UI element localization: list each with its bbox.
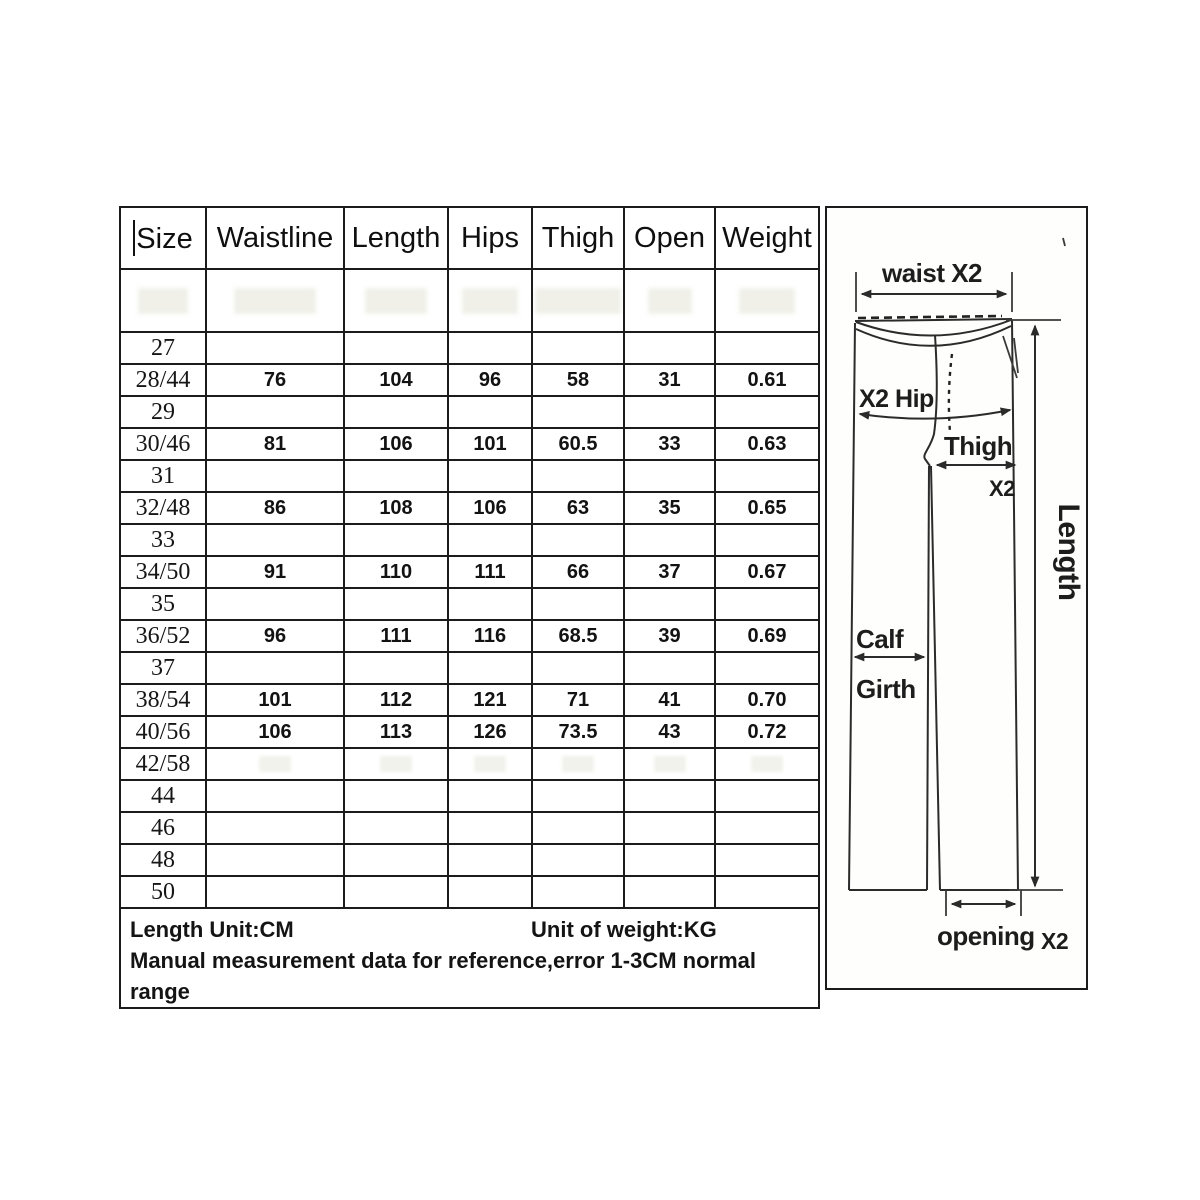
header-row: Size Waistline Length Hips Thigh Open We… — [120, 207, 819, 269]
speck-artifact — [1063, 238, 1065, 246]
hips-cell — [448, 812, 532, 844]
weight-cell: 0.70 — [715, 684, 819, 716]
length-cell: 108 — [344, 492, 448, 524]
faded-text-smudge — [739, 288, 795, 314]
weight-cell — [715, 460, 819, 492]
weight-cell — [715, 748, 819, 780]
open-cell — [624, 396, 715, 428]
col-header-size: Size — [120, 207, 206, 269]
hips-cell: 121 — [448, 684, 532, 716]
waistline-cell — [206, 748, 344, 780]
col-header-thigh: Thigh — [532, 207, 624, 269]
ghost-cell — [448, 269, 532, 332]
open-cell — [624, 876, 715, 908]
open-cell: 37 — [624, 556, 715, 588]
col-header-waistline: Waistline — [206, 207, 344, 269]
weight-cell — [715, 844, 819, 876]
length-cell: 104 — [344, 364, 448, 396]
thigh-measure: Thigh X2 — [937, 431, 1015, 501]
table-row: 30/46 81 106 101 60.5 33 0.63 — [120, 428, 819, 460]
table-row: 28/44 76 104 96 58 31 0.61 — [120, 364, 819, 396]
open-cell — [624, 652, 715, 684]
thigh-label: Thigh — [944, 431, 1012, 461]
col-header-open: Open — [624, 207, 715, 269]
waistline-cell: 96 — [206, 620, 344, 652]
open-cell — [624, 332, 715, 364]
col-header-length: Length — [344, 207, 448, 269]
thigh-cell — [532, 780, 624, 812]
thigh-cell: 60.5 — [532, 428, 624, 460]
ghost-cell — [120, 269, 206, 332]
waistline-cell: 81 — [206, 428, 344, 460]
table-row: 29 — [120, 396, 819, 428]
thigh-cell: 71 — [532, 684, 624, 716]
hips-cell — [448, 524, 532, 556]
thigh-cell: 63 — [532, 492, 624, 524]
size-cell: 42/58 — [120, 748, 206, 780]
weight-cell: 0.63 — [715, 428, 819, 460]
thigh-cell — [532, 588, 624, 620]
calf-girth-measure: Calf Girth — [855, 624, 924, 704]
size-cell: 33 — [120, 524, 206, 556]
waistline-cell: 91 — [206, 556, 344, 588]
ghost-cell — [715, 269, 819, 332]
ghost-header-row — [120, 269, 819, 332]
size-chart: Size Waistline Length Hips Thigh Open We… — [119, 206, 1088, 990]
length-cell: 106 — [344, 428, 448, 460]
weight-cell — [715, 876, 819, 908]
length-cell: 111 — [344, 620, 448, 652]
open-cell — [624, 748, 715, 780]
hips-cell — [448, 588, 532, 620]
weight-cell — [715, 812, 819, 844]
faded-text-smudge — [648, 288, 692, 314]
col-header-hips: Hips — [448, 207, 532, 269]
faded-value-smudge — [654, 756, 686, 772]
size-cell: 34/50 — [120, 556, 206, 588]
size-table-body: 27 28/44 76 104 96 58 31 0.61 29 30/46 8… — [120, 332, 819, 908]
thigh-cell: 73.5 — [532, 716, 624, 748]
waistline-cell — [206, 812, 344, 844]
length-cell — [344, 332, 448, 364]
size-cell: 36/52 — [120, 620, 206, 652]
length-cell: 112 — [344, 684, 448, 716]
hips-cell: 106 — [448, 492, 532, 524]
open-cell: 33 — [624, 428, 715, 460]
hip-label: X2 Hip — [859, 385, 934, 413]
size-cell: 29 — [120, 396, 206, 428]
thigh-cell — [532, 748, 624, 780]
hips-cell — [448, 876, 532, 908]
waist-measure: waist X2 — [856, 258, 1012, 312]
weight-cell — [715, 588, 819, 620]
table-row: 40/56 106 113 126 73.5 43 0.72 — [120, 716, 819, 748]
fly-dashed-line — [949, 354, 952, 432]
open-cell — [624, 812, 715, 844]
waistline-cell — [206, 844, 344, 876]
text-cursor — [133, 220, 135, 256]
length-cell — [344, 396, 448, 428]
waistline-cell — [206, 396, 344, 428]
size-cell: 48 — [120, 844, 206, 876]
size-table: Size Waistline Length Hips Thigh Open We… — [119, 206, 820, 1009]
table-row: 44 — [120, 780, 819, 812]
open-cell — [624, 780, 715, 812]
calf-label: Calf — [856, 624, 904, 654]
col-header-size-label: Size — [136, 223, 192, 255]
table-row: 33 — [120, 524, 819, 556]
ghost-cell — [532, 269, 624, 332]
girth-label: Girth — [856, 674, 916, 704]
thigh-cell — [532, 524, 624, 556]
thigh-cell — [532, 460, 624, 492]
open-cell — [624, 844, 715, 876]
size-cell: 35 — [120, 588, 206, 620]
length-unit-note: Length Unit:CM — [130, 917, 294, 942]
hips-cell — [448, 844, 532, 876]
thigh-cell: 58 — [532, 364, 624, 396]
table-row: 34/50 91 110 111 66 37 0.67 — [120, 556, 819, 588]
open-cell — [624, 588, 715, 620]
faded-text-smudge — [535, 288, 621, 314]
length-label: Length — [1052, 504, 1085, 601]
weight-cell — [715, 396, 819, 428]
table-row: 50 — [120, 876, 819, 908]
thigh-cell — [532, 812, 624, 844]
table-row: 42/58 — [120, 748, 819, 780]
weight-cell: 0.72 — [715, 716, 819, 748]
hips-cell: 96 — [448, 364, 532, 396]
table-row: 36/52 96 111 116 68.5 39 0.69 — [120, 620, 819, 652]
open-cell: 41 — [624, 684, 715, 716]
thigh-cell — [532, 652, 624, 684]
open-cell: 31 — [624, 364, 715, 396]
units-note-cell: Length Unit:CM Unit of weight:KG Manual … — [120, 908, 819, 1008]
size-cell: 37 — [120, 652, 206, 684]
open-cell — [624, 524, 715, 556]
hips-cell: 116 — [448, 620, 532, 652]
open-cell: 39 — [624, 620, 715, 652]
waistline-cell — [206, 524, 344, 556]
thigh-cell — [532, 876, 624, 908]
faded-value-smudge — [562, 756, 594, 772]
thigh-cell: 68.5 — [532, 620, 624, 652]
waistline-cell: 86 — [206, 492, 344, 524]
waistline-cell — [206, 588, 344, 620]
size-cell: 32/48 — [120, 492, 206, 524]
hip-measure: X2 Hip — [859, 385, 1010, 419]
faded-value-smudge — [474, 756, 506, 772]
faded-text-smudge — [462, 288, 518, 314]
size-cell: 40/56 — [120, 716, 206, 748]
weight-cell: 0.69 — [715, 620, 819, 652]
table-row: 31 — [120, 460, 819, 492]
hips-cell — [448, 652, 532, 684]
ghost-cell — [624, 269, 715, 332]
length-cell — [344, 780, 448, 812]
waistline-cell: 106 — [206, 716, 344, 748]
waistline-cell — [206, 780, 344, 812]
size-cell: 31 — [120, 460, 206, 492]
ghost-cell — [344, 269, 448, 332]
length-cell: 113 — [344, 716, 448, 748]
length-cell — [344, 524, 448, 556]
pants-diagram: waist X2 X2 Hip Thigh X2 Length — [825, 206, 1088, 990]
waistline-cell — [206, 460, 344, 492]
thigh-x2-label: X2 — [989, 476, 1015, 501]
table-row: 46 — [120, 812, 819, 844]
weight-cell — [715, 780, 819, 812]
weight-cell: 0.65 — [715, 492, 819, 524]
thigh-cell: 66 — [532, 556, 624, 588]
size-cell: 27 — [120, 332, 206, 364]
weight-unit-note: Unit of weight:KG — [531, 914, 717, 945]
length-cell: 110 — [344, 556, 448, 588]
length-cell — [344, 652, 448, 684]
length-cell — [344, 876, 448, 908]
pants-measurement-drawing: waist X2 X2 Hip Thigh X2 Length — [827, 208, 1086, 988]
length-cell — [344, 748, 448, 780]
waistline-cell: 101 — [206, 684, 344, 716]
waist-label: waist X2 — [881, 258, 982, 288]
measurement-disclaimer: Manual measurement data for reference,er… — [121, 945, 818, 1007]
waistline-cell — [206, 876, 344, 908]
faded-text-smudge — [234, 288, 316, 314]
ghost-cell — [206, 269, 344, 332]
table-row: 27 — [120, 332, 819, 364]
table-row: 48 — [120, 844, 819, 876]
size-cell: 50 — [120, 876, 206, 908]
faded-value-smudge — [751, 756, 783, 772]
open-cell: 43 — [624, 716, 715, 748]
weight-cell — [715, 332, 819, 364]
opening-x2-label: X2 — [1041, 928, 1068, 954]
length-cell — [344, 844, 448, 876]
opening-measure: opening X2 — [937, 890, 1068, 954]
weight-cell: 0.61 — [715, 364, 819, 396]
table-row: 38/54 101 112 121 71 41 0.70 — [120, 684, 819, 716]
weight-cell: 0.67 — [715, 556, 819, 588]
size-cell: 28/44 — [120, 364, 206, 396]
faded-value-smudge — [380, 756, 412, 772]
size-cell: 46 — [120, 812, 206, 844]
footer-row: Length Unit:CM Unit of weight:KG Manual … — [120, 908, 819, 1008]
faded-text-smudge — [365, 288, 427, 314]
waistline-cell — [206, 652, 344, 684]
hips-cell: 126 — [448, 716, 532, 748]
thigh-cell — [532, 396, 624, 428]
size-cell: 30/46 — [120, 428, 206, 460]
hips-cell — [448, 780, 532, 812]
faded-text-smudge — [138, 288, 188, 314]
size-cell: 38/54 — [120, 684, 206, 716]
waistline-cell — [206, 332, 344, 364]
hips-cell — [448, 460, 532, 492]
table-row: 35 — [120, 588, 819, 620]
length-cell — [344, 588, 448, 620]
size-cell: 44 — [120, 780, 206, 812]
hips-cell: 101 — [448, 428, 532, 460]
table-row: 37 — [120, 652, 819, 684]
length-cell — [344, 812, 448, 844]
opening-label: opening — [937, 921, 1035, 951]
thigh-cell — [532, 332, 624, 364]
hips-cell — [448, 396, 532, 428]
weight-cell — [715, 524, 819, 556]
open-cell: 35 — [624, 492, 715, 524]
hips-cell — [448, 748, 532, 780]
weight-cell — [715, 652, 819, 684]
col-header-weight: Weight — [715, 207, 819, 269]
open-cell — [624, 460, 715, 492]
hips-cell — [448, 332, 532, 364]
waist-dashed-edge — [858, 316, 1002, 318]
waistline-cell: 76 — [206, 364, 344, 396]
thigh-cell — [532, 844, 624, 876]
length-cell — [344, 460, 448, 492]
pocket-line — [1014, 338, 1018, 373]
hips-cell: 111 — [448, 556, 532, 588]
table-row: 32/48 86 108 106 63 35 0.65 — [120, 492, 819, 524]
faded-value-smudge — [259, 756, 291, 772]
